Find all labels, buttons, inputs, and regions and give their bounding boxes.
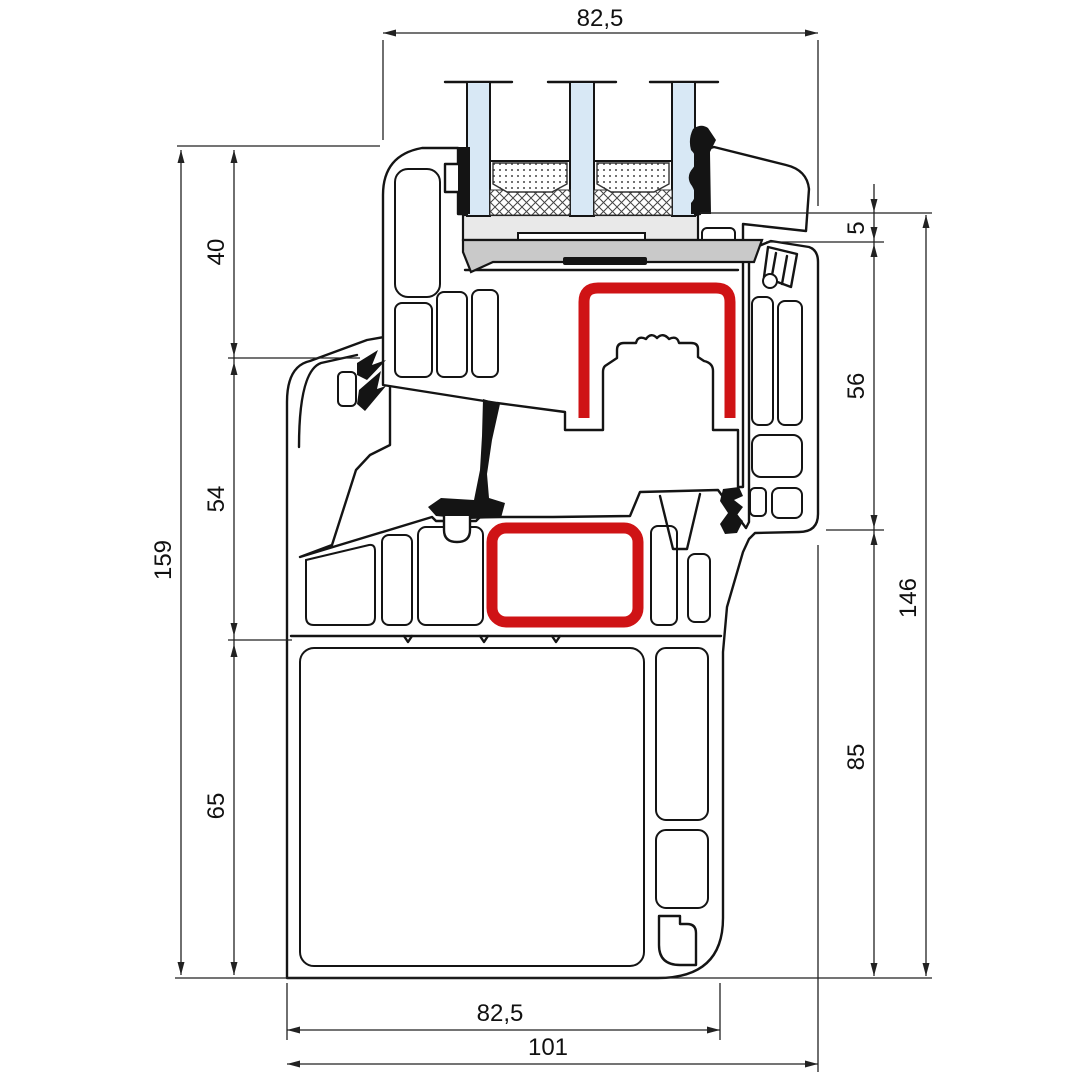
glass-pane-1: [467, 82, 490, 216]
dimension-left-total: 159: [150, 150, 185, 975]
frame-foot-hook: [659, 916, 696, 965]
frame-chamber: [750, 488, 766, 516]
dim-label-56: 56: [843, 373, 870, 400]
frame-chamber: [772, 488, 802, 518]
frame-chamber: [688, 554, 710, 622]
dim-label-40: 40: [203, 239, 230, 266]
glazing-spacer-1: [490, 161, 570, 215]
frame-clip-roll: [763, 274, 777, 288]
dimension-right-segments: 5 56 85: [843, 184, 878, 976]
frame-chamber: [656, 830, 708, 908]
dim-label-54: 54: [203, 486, 230, 513]
dim-label-bottom-overall: 101: [528, 1034, 568, 1061]
dimension-top-width: 82,5: [383, 5, 818, 37]
cross-section-drawing: 82,5 159 40 54 65: [0, 0, 1080, 1080]
dim-label-bottom-inner: 82,5: [477, 1000, 524, 1027]
dimension-bottom-overall: 101: [287, 1034, 818, 1068]
frame-chamber: [651, 526, 677, 625]
frame-chamber: [752, 297, 773, 425]
frame-chamber: [752, 435, 802, 477]
dim-label-146: 146: [895, 578, 922, 618]
glazing-unit: [445, 82, 718, 216]
glazing-gasket-inner: [458, 147, 470, 214]
steel-reinforcement-box: [492, 528, 638, 622]
technical-drawing-canvas: 82,5 159 40 54 65: [0, 0, 1080, 1080]
frame-chamber: [306, 545, 375, 625]
dim-label-left-total: 159: [150, 540, 177, 580]
sash-chamber: [437, 292, 467, 377]
dimension-left-segments: 40 54 65: [203, 150, 238, 975]
center-seal-channel: [444, 516, 470, 542]
glass-pane-2: [570, 82, 594, 216]
frame-main-chamber: [300, 648, 644, 966]
frame-corner-chamber: [338, 372, 356, 406]
dim-label-top-width: 82,5: [577, 5, 624, 32]
sash-chamber: [395, 169, 440, 297]
glazing-spacer-2: [594, 161, 672, 215]
sash-chamber: [472, 290, 498, 377]
center-seal-gasket: [428, 399, 505, 519]
dim-label-5: 5: [843, 221, 870, 234]
frame-chamber: [778, 301, 802, 425]
dimension-right-total: 146: [895, 215, 930, 976]
frame-chamber: [656, 648, 708, 820]
dim-label-65: 65: [203, 793, 230, 820]
bed-seal-strip: [563, 257, 647, 265]
sash-chamber: [395, 303, 432, 377]
frame-chamber: [382, 535, 412, 625]
dimension-bottom-inner: 82,5: [287, 1000, 720, 1034]
dim-label-85: 85: [843, 744, 870, 771]
